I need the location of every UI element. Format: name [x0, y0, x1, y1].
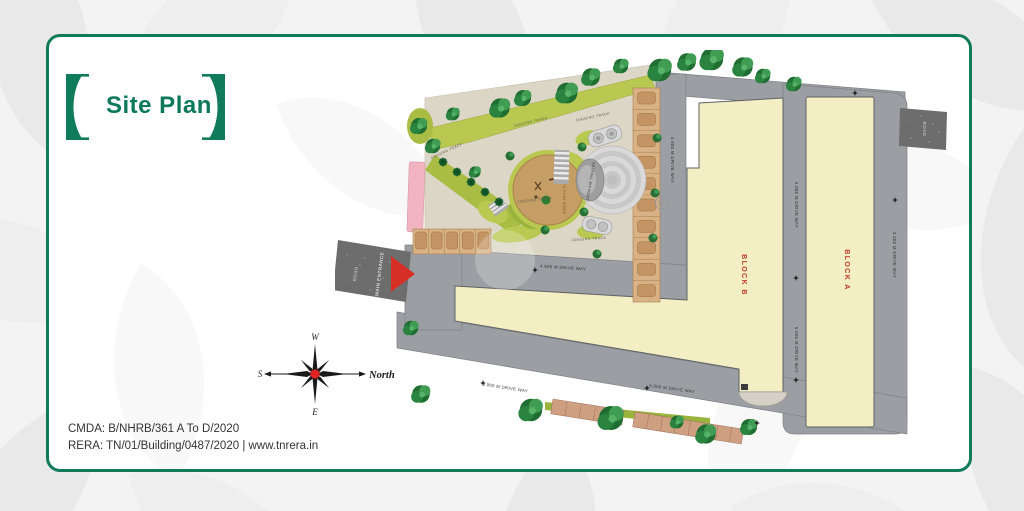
- page-title: Site Plan: [106, 92, 212, 120]
- compass-south-label: S: [258, 369, 263, 379]
- title-bracket-right-icon: [201, 74, 225, 140]
- compass-north-label: North: [368, 370, 395, 381]
- exit-road: ROAD: [899, 108, 947, 150]
- page: Site Plan: [0, 0, 1024, 511]
- block-a-label: BLOCK A: [843, 249, 850, 290]
- registration-info: CMDA: B/NHRB/361 A To D/2020 RERA: TN/01…: [68, 421, 318, 454]
- driveway-label-5000-left: 5.000 M DRIVE WAY: [482, 381, 528, 393]
- crosswalk: [553, 150, 569, 185]
- title-bracket-left-icon: [66, 74, 90, 140]
- children-play-area: CHILDREN PLAY AREA: [508, 150, 588, 230]
- block-a: BLOCK A: [806, 97, 874, 427]
- palm-tree-icon: [467, 178, 476, 187]
- road-label: ROAD: [922, 121, 927, 136]
- site-plan-drawing: ROAD MAIN ENTRANCE ROAD BLOCK B BLOCK A: [335, 50, 955, 450]
- compass-west-label: W: [311, 332, 320, 342]
- driveway-label-3000: 3.000 M DRIVE WAY: [892, 232, 897, 278]
- rera-line: RERA: TN/01/Building/0487/2020 | www.tnr…: [68, 438, 318, 455]
- block-b-label: BLOCK B: [740, 254, 747, 296]
- palm-tree-icon: [495, 198, 504, 207]
- compass-east-label: E: [311, 407, 318, 417]
- palm-tree-icon: [481, 188, 490, 197]
- compass-rose: W S E North: [255, 330, 405, 418]
- driveway-label-4500-vertical: 4.500 M DRIVE WAY: [670, 137, 675, 183]
- pink-zone: [407, 162, 425, 233]
- driveway-label-6000-lower: 6.000 M DRIVE WAY: [794, 327, 799, 373]
- compass-center: [311, 370, 320, 379]
- palm-tree-icon: [439, 158, 448, 167]
- cmda-line: CMDA: B/NHRB/361 A To D/2020: [68, 421, 318, 438]
- watermark: [475, 230, 535, 290]
- driveway-label-6000-upper: 6.000 M DRIVE WAY: [794, 182, 799, 228]
- palm-tree-icon: [453, 168, 462, 177]
- main-entrance-road: ROAD MAIN ENTRANCE: [335, 240, 415, 302]
